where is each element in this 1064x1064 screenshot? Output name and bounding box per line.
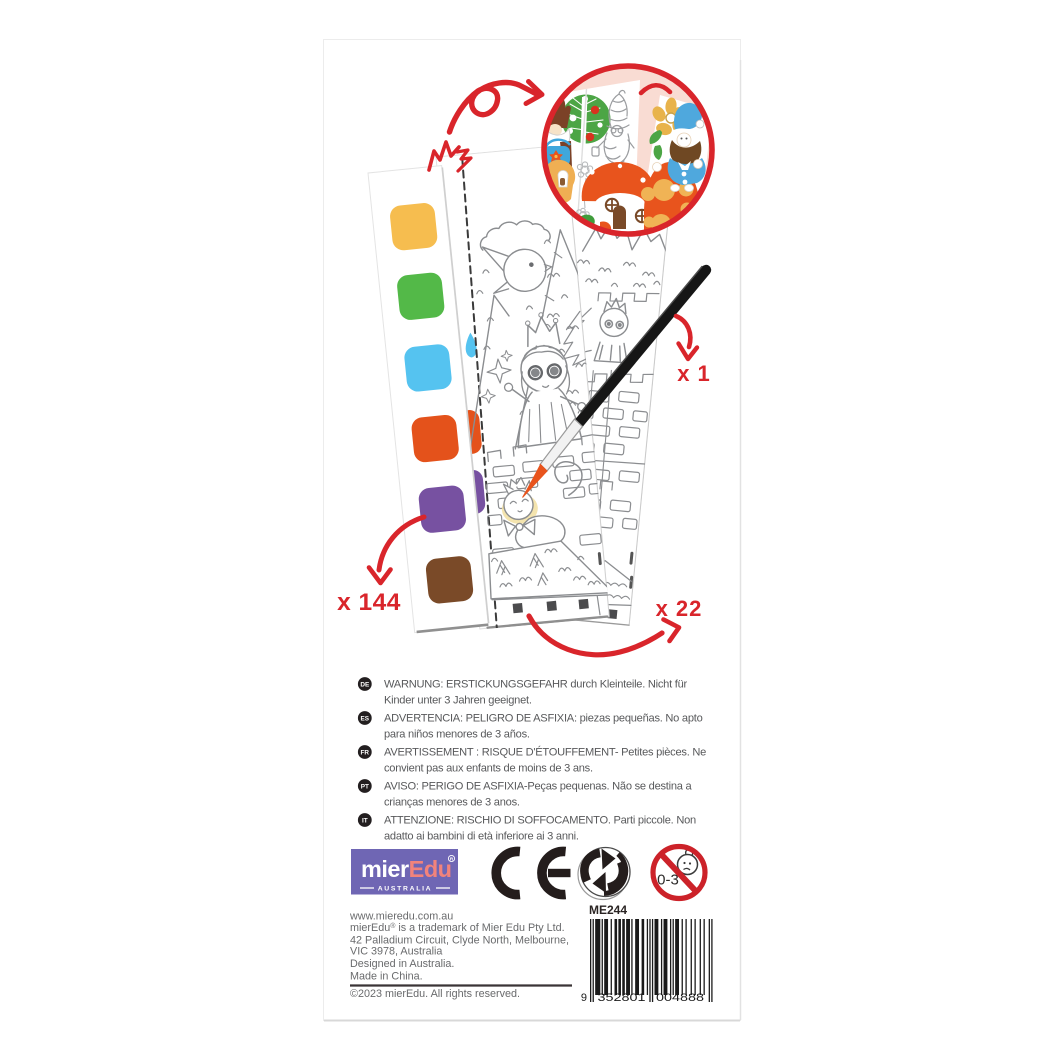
svg-text:Made in China.: Made in China. bbox=[350, 971, 423, 983]
svg-text:WARNUNG: ERSTICKUNGSGEFAHR dur: WARNUNG: ERSTICKUNGSGEFAHR durch Kleinte… bbox=[384, 679, 688, 691]
svg-text:9: 9 bbox=[581, 992, 587, 1004]
svg-text:www.mieredu.com.au: www.mieredu.com.au bbox=[349, 911, 453, 923]
svg-text:x 144: x 144 bbox=[337, 589, 401, 616]
svg-text:ADVERTENCIA: PELIGRO DE ASFIXI: ADVERTENCIA: PELIGRO DE ASFIXIA: piezas … bbox=[384, 713, 703, 725]
svg-text:©2023 mierEdu. All rights rese: ©2023 mierEdu. All rights reserved. bbox=[350, 988, 520, 1000]
svg-text:Designed in Australia.: Designed in Australia. bbox=[350, 958, 454, 970]
svg-text:FR: FR bbox=[361, 749, 370, 756]
svg-text:AVERTISSEMENT : RISQUE D'ÉTOUF: AVERTISSEMENT : RISQUE D'ÉTOUFFEMENT- Pe… bbox=[384, 746, 706, 759]
svg-text:PT: PT bbox=[361, 783, 369, 790]
svg-text:Kinder unter 3 Jahren geeignet: Kinder unter 3 Jahren geeignet. bbox=[384, 695, 532, 707]
svg-text:ES: ES bbox=[361, 715, 370, 722]
svg-text:para niños menores de 3 años.: para niños menores de 3 años. bbox=[384, 729, 530, 741]
svg-text:adatto ai bambini di età infer: adatto ai bambini di età inferiore ai 3 … bbox=[384, 831, 579, 843]
svg-text:0-3: 0-3 bbox=[657, 872, 679, 889]
svg-text:004888: 004888 bbox=[656, 992, 704, 1004]
svg-text:AUSTRALIA: AUSTRALIA bbox=[378, 886, 433, 893]
svg-text:IT: IT bbox=[362, 817, 368, 824]
svg-text:mierEdu: mierEdu bbox=[361, 856, 452, 882]
svg-text:ME244: ME244 bbox=[589, 903, 627, 917]
svg-text:VIC 3978, Australia: VIC 3978, Australia bbox=[350, 946, 442, 958]
svg-text:crianças menores de 3 anos.: crianças menores de 3 anos. bbox=[384, 797, 520, 809]
svg-text:352801: 352801 bbox=[598, 992, 646, 1004]
svg-text:DE: DE bbox=[360, 681, 370, 688]
svg-text:x 22: x 22 bbox=[656, 596, 703, 621]
svg-text:convient pas aux enfants de mo: convient pas aux enfants de moins de 3 a… bbox=[384, 763, 593, 775]
svg-text:x 1: x 1 bbox=[677, 361, 711, 386]
svg-text:AVISO: PERIGO DE ASFIXIA-Peças: AVISO: PERIGO DE ASFIXIA-Peças pequenas.… bbox=[384, 781, 692, 793]
svg-text:mierEdu® is a trademark of Mie: mierEdu® is a trademark of Mier Edu Pty … bbox=[350, 922, 565, 934]
svg-text:ATTENZIONE: RISCHIO DI SOFFOCA: ATTENZIONE: RISCHIO DI SOFFOCAMENTO. Par… bbox=[384, 815, 696, 827]
